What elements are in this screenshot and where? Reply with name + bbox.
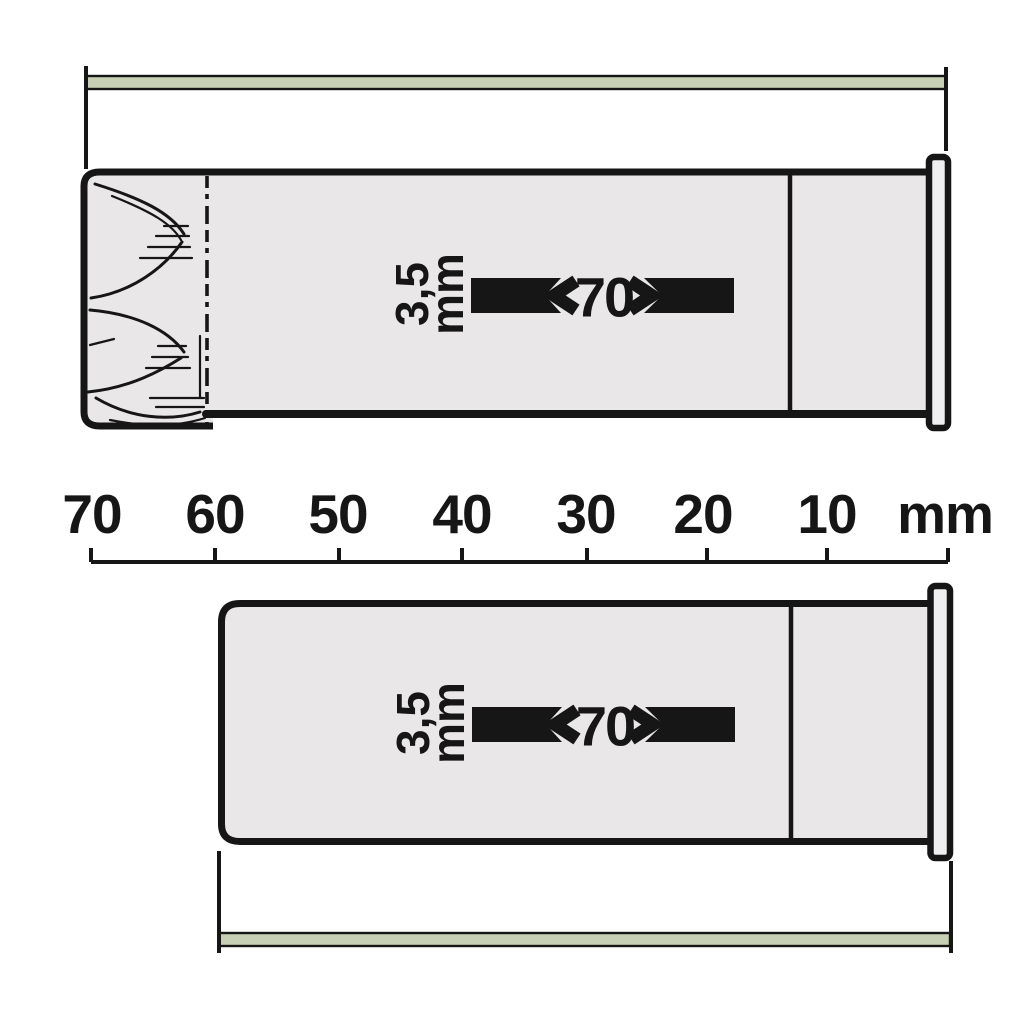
ruler-unit-label: mm bbox=[897, 487, 993, 542]
ruler-label-50: 50 bbox=[308, 487, 367, 542]
fired-shell-illustration bbox=[84, 157, 948, 428]
rim-fired bbox=[929, 157, 948, 428]
ruler-label-10: 10 bbox=[797, 487, 856, 542]
ruler-label-40: 40 bbox=[432, 487, 491, 542]
length-label-crimped: 70 bbox=[576, 694, 634, 759]
shell-length-diagram bbox=[0, 0, 1020, 1030]
ruler bbox=[91, 548, 948, 562]
bore-diameter-label-fired: 3,5 mm bbox=[395, 253, 465, 335]
bore-diameter-label-crimped: 3,5 mm bbox=[396, 682, 466, 764]
ruler-label-30: 30 bbox=[556, 487, 615, 542]
reference-strip-bottom bbox=[219, 933, 950, 946]
bore-diameter-unit-fired: mm bbox=[430, 253, 465, 335]
length-label-fired: 70 bbox=[575, 265, 633, 330]
rim-crimped bbox=[931, 586, 951, 858]
ruler-label-60: 60 bbox=[185, 487, 244, 542]
ruler-label-20: 20 bbox=[673, 487, 732, 542]
ruler-label-70: 70 bbox=[62, 487, 121, 542]
figure-canvas: 70 60 50 40 30 20 10 mm 3,5 mm 70 3,5 mm… bbox=[0, 0, 1020, 1030]
crimp-section-fired bbox=[84, 172, 213, 426]
reference-strip-top bbox=[86, 76, 946, 89]
bore-diameter-unit-crimped: mm bbox=[431, 682, 466, 764]
